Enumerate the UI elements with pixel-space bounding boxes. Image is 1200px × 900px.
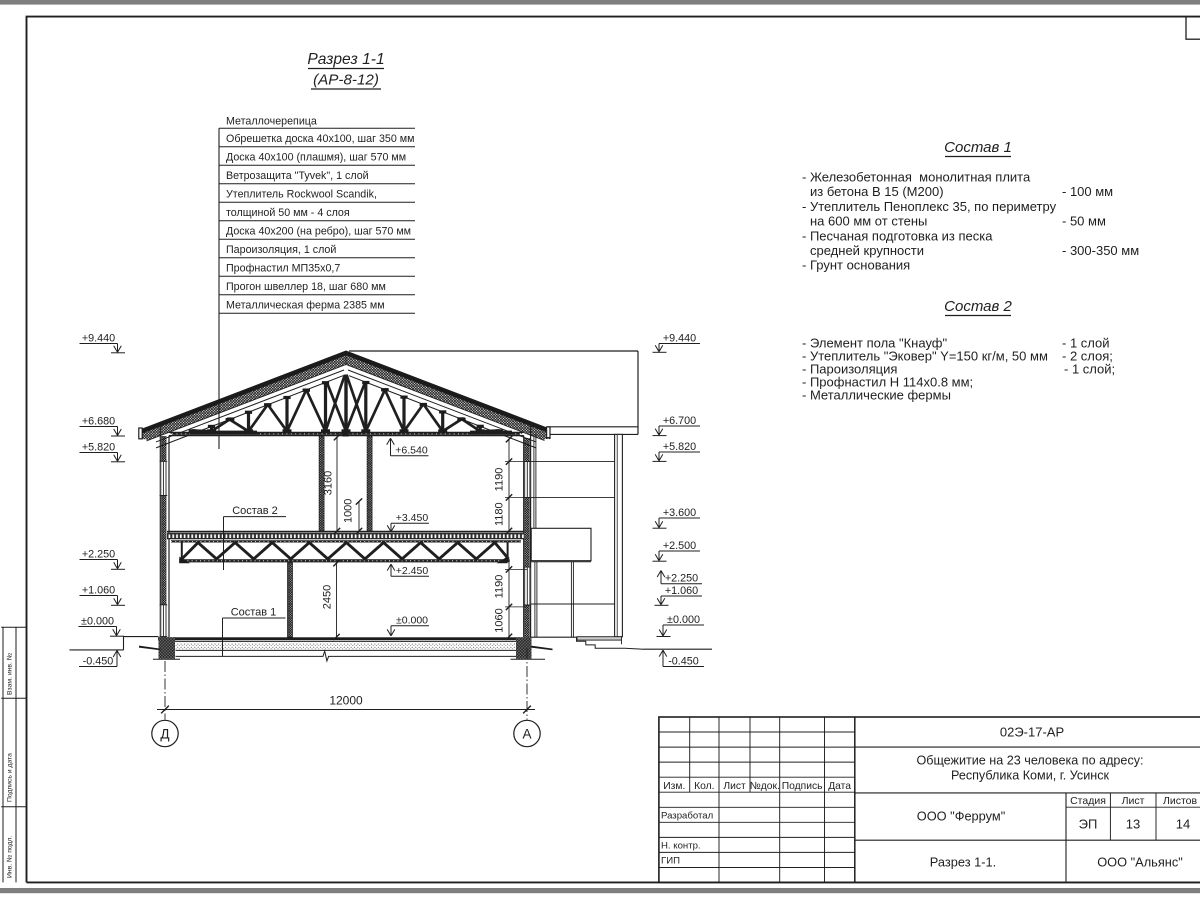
svg-text:на 600 мм от стены: на 600 мм от стены bbox=[810, 214, 927, 229]
svg-text:толщиной 50 мм - 4 слоя: толщиной 50 мм - 4 слоя bbox=[226, 207, 350, 219]
svg-text:Состав 1: Состав 1 bbox=[944, 139, 1012, 156]
svg-text:1060: 1060 bbox=[494, 608, 506, 632]
svg-text:+5.820: +5.820 bbox=[663, 441, 696, 453]
svg-text:Разработал: Разработал bbox=[661, 811, 713, 822]
svg-text:+2.450: +2.450 bbox=[396, 565, 429, 577]
svg-text:ООО "Альянс": ООО "Альянс" bbox=[1097, 855, 1183, 870]
svg-text:Листов: Листов bbox=[1163, 795, 1198, 807]
svg-text:+2.250: +2.250 bbox=[665, 573, 698, 585]
svg-text:Доска 40х200 (на ребро), шаг 5: Доска 40х200 (на ребро), шаг 570 мм bbox=[226, 225, 411, 237]
svg-text:из бетона В 15 (М200): из бетона В 15 (М200) bbox=[810, 184, 944, 199]
svg-text:Республика Коми, г. Усинск: Республика Коми, г. Усинск bbox=[951, 768, 1110, 782]
svg-text:Подпись и дата: Подпись и дата bbox=[7, 753, 14, 802]
svg-text:- Металлические фермы: - Металлические фермы bbox=[802, 388, 951, 403]
svg-text:Общежитие на 23 человека по ад: Общежитие на 23 человека по адресу: bbox=[916, 754, 1143, 768]
svg-text:1190: 1190 bbox=[494, 575, 506, 599]
svg-text:- Железобетонная монолитная п: - Железобетонная монолитная плита bbox=[802, 170, 1031, 185]
svg-text:+9.440: +9.440 bbox=[663, 332, 696, 344]
svg-text:+3.450: +3.450 bbox=[396, 512, 429, 524]
svg-text:Взам. инв. №: Взам. инв. № bbox=[7, 653, 14, 695]
svg-text:ЭП: ЭП bbox=[1079, 817, 1098, 832]
svg-text:- 300-350 мм: - 300-350 мм bbox=[1062, 243, 1139, 258]
svg-text:№док.: №док. bbox=[750, 781, 780, 792]
svg-text:- Песчаная подготовка из песка: - Песчаная подготовка из песка bbox=[802, 228, 993, 243]
svg-text:Разрез 1-1: Разрез 1-1 bbox=[307, 51, 384, 68]
svg-text:+9.440: +9.440 bbox=[82, 332, 115, 344]
svg-text:±0.000: ±0.000 bbox=[667, 614, 700, 626]
svg-text:ООО "Феррум": ООО "Феррум" bbox=[917, 809, 1006, 824]
svg-text:Инв. № подл.: Инв. № подл. bbox=[7, 836, 14, 878]
svg-text:14: 14 bbox=[1176, 817, 1190, 832]
svg-text:1180: 1180 bbox=[494, 502, 506, 526]
svg-text:Металлочерепица: Металлочерепица bbox=[226, 116, 317, 128]
svg-text:3160: 3160 bbox=[323, 471, 335, 495]
svg-text:- 50 мм: - 50 мм bbox=[1062, 214, 1106, 229]
svg-text:Лист: Лист bbox=[723, 781, 746, 792]
svg-text:+6.700: +6.700 bbox=[663, 415, 696, 427]
svg-text:Состав 2: Состав 2 bbox=[232, 505, 278, 517]
svg-text:- 100 мм: - 100 мм bbox=[1062, 184, 1113, 199]
svg-text:Обрешетка доска 40х100, шаг 35: Обрешетка доска 40х100, шаг 350 мм bbox=[226, 133, 414, 145]
svg-text:- Утеплитель Пеноплекс 35, по: - Утеплитель Пеноплекс 35, по периметру bbox=[802, 199, 1057, 214]
svg-text:Утеплитель Rockwool Scandik,: Утеплитель Rockwool Scandik, bbox=[226, 188, 377, 200]
svg-text:+6.540: +6.540 bbox=[395, 445, 428, 457]
svg-text:А: А bbox=[522, 726, 531, 741]
svg-text:1190: 1190 bbox=[494, 468, 506, 492]
svg-text:-0.450: -0.450 bbox=[83, 655, 114, 667]
svg-text:Ветрозащита "Tyvek", 1 слой: Ветрозащита "Tyvek", 1 слой bbox=[226, 170, 369, 182]
svg-text:- Грунт основания: - Грунт основания bbox=[802, 258, 910, 273]
svg-text:±0.000: ±0.000 bbox=[396, 615, 428, 627]
svg-text:Лист: Лист bbox=[1122, 795, 1145, 807]
svg-text:Кол.: Кол. bbox=[694, 781, 714, 792]
svg-text:+1.060: +1.060 bbox=[82, 584, 115, 596]
svg-text:Дата: Дата bbox=[828, 781, 851, 792]
svg-text:ГИП: ГИП bbox=[661, 855, 680, 866]
svg-text:Подпись: Подпись bbox=[782, 781, 823, 792]
svg-text:Состав 2: Состав 2 bbox=[944, 298, 1012, 315]
svg-text:Доска 40х100 (плашмя), шаг 570: Доска 40х100 (плашмя), шаг 570 мм bbox=[226, 151, 406, 163]
svg-text:02Э-17-АР: 02Э-17-АР bbox=[1000, 725, 1064, 740]
svg-text:1000: 1000 bbox=[343, 499, 355, 523]
svg-text:Профнастил МП35х0,7: Профнастил МП35х0,7 bbox=[226, 262, 340, 274]
svg-text:Состав 1: Состав 1 bbox=[231, 607, 277, 619]
svg-text:+5.820: +5.820 bbox=[82, 441, 115, 453]
svg-text:±0.000: ±0.000 bbox=[81, 615, 114, 627]
svg-text:2450: 2450 bbox=[322, 585, 334, 609]
svg-text:+3.600: +3.600 bbox=[663, 507, 696, 519]
svg-text:Д: Д bbox=[160, 726, 169, 741]
svg-text:(АР-8-12): (АР-8-12) bbox=[313, 72, 379, 89]
svg-text:- 1 слой;: - 1 слой; bbox=[1064, 362, 1115, 377]
svg-text:Металлическая ферма 2385 мм: Металлическая ферма 2385 мм bbox=[226, 299, 385, 311]
svg-text:Прогон швеллер 18, шаг 680 мм: Прогон швеллер 18, шаг 680 мм bbox=[226, 281, 386, 293]
svg-text:+1.060: +1.060 bbox=[665, 585, 698, 597]
svg-text:13: 13 bbox=[1126, 817, 1140, 832]
svg-text:+6.680: +6.680 bbox=[82, 415, 115, 427]
svg-text:Изм.: Изм. bbox=[663, 781, 685, 792]
svg-text:-0.450: -0.450 bbox=[668, 655, 699, 667]
svg-text:средней крупности: средней крупности bbox=[810, 243, 924, 258]
svg-text:Стадия: Стадия bbox=[1070, 795, 1106, 807]
svg-text:Н. контр.: Н. контр. bbox=[661, 841, 701, 852]
svg-text:12000: 12000 bbox=[329, 694, 363, 708]
svg-text:Пароизоляция, 1 слой: Пароизоляция, 1 слой bbox=[226, 244, 336, 256]
svg-text:+2.500: +2.500 bbox=[663, 540, 696, 552]
svg-text:Разрез 1-1.: Разрез 1-1. bbox=[930, 855, 996, 870]
svg-text:+2.250: +2.250 bbox=[82, 548, 115, 560]
